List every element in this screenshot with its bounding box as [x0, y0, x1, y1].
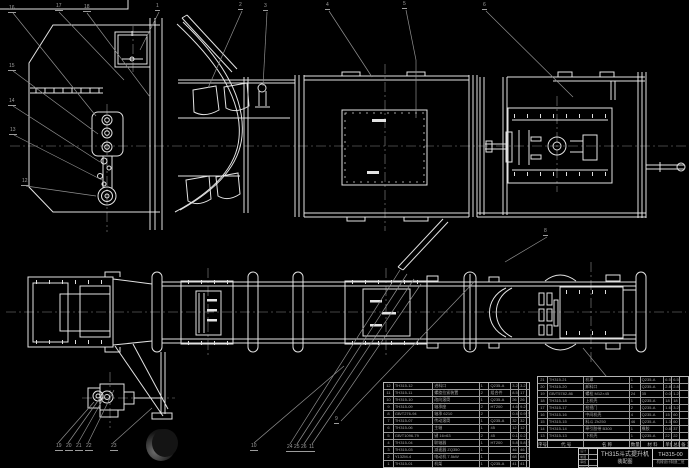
casing-door-1	[181, 281, 233, 344]
bucket	[186, 176, 211, 204]
drawing-title: TH315斗式提升机	[601, 452, 649, 459]
item-balloon: 23	[110, 444, 118, 451]
item-balloon: 21	[75, 444, 83, 451]
bom-header-row: 序号代 号名 称数量材 料单件总计备 注	[537, 440, 689, 448]
bom-table-left: 12TH315-12进料口1Q235-A3.23.211TH315-11螺旋拉紧…	[383, 382, 530, 468]
item-balloon: 15	[8, 64, 16, 71]
item-balloon: 4	[325, 3, 330, 10]
bom-row: 17TH315-17检视门2Q235-A1.63.2	[538, 404, 688, 411]
bom-row: 14TH315-14牵引胶带 B3001橡胶0.837	[538, 425, 688, 432]
down-chute	[115, 346, 163, 416]
title-cell: TH315斗式提升机 装配图	[598, 449, 653, 467]
drive-unit	[88, 384, 161, 417]
item-balloon: 9	[334, 417, 339, 424]
item-balloon: 22	[85, 444, 93, 451]
bom-row: 11TH315-11螺旋拉紧装置2组合件8.517	[384, 389, 529, 396]
bom-row: 6TH315-06主轴1451212	[384, 424, 529, 431]
item-balloon: 1	[155, 4, 160, 11]
bom-header-cell: 总计	[671, 441, 679, 447]
bom-header-cell: 材 料	[640, 441, 664, 447]
inlet-chute	[398, 219, 448, 270]
walkway-ticks	[36, 88, 99, 93]
bom-row: 18TH315-18上机壳1Q235-A1818	[538, 397, 688, 404]
bom-cell: 下机壳	[583, 433, 628, 439]
bom-cell	[526, 461, 529, 467]
bom-row: 3TH315-03减速器 ZQ35014646外购	[384, 446, 529, 453]
bom-cell	[679, 433, 688, 439]
item-balloon: 3	[263, 4, 268, 11]
bucket-bolt	[255, 84, 270, 107]
item-balloon: 10	[250, 444, 258, 451]
bom-row: 2Y132M-4电动机 7.5kW16868外购	[384, 453, 529, 460]
bom-header-cell: 数量	[629, 441, 640, 447]
drawing-subtitle: 装配图	[617, 459, 632, 465]
bom-cell: 41	[518, 461, 526, 467]
bom-row: 4TH315-04联轴器1HT2005.85.8外购	[384, 439, 529, 446]
item-balloon: 13	[9, 128, 17, 135]
bom-row: 15TH315-15料斗 Zh25046Q235-A1.360	[538, 418, 688, 425]
item-balloon: 26	[300, 445, 308, 452]
item-balloon: 20	[65, 444, 73, 451]
item-balloon: 11	[308, 445, 315, 452]
drawing-number-cell: TH315-00 机械设计制造二班	[653, 449, 688, 467]
signature-grid: 设计制图审核批准	[579, 449, 598, 467]
bom-cell: Q235-A	[640, 433, 664, 439]
bom-row: 10TH315-10改向滚筒1Q235-A2626	[384, 396, 529, 403]
bom-row: 7TH315-07传动滚筒1Q235-A3232	[384, 417, 529, 424]
bom-row: 19GB/T5782-86螺栓 M12×4524350.051.2	[538, 390, 688, 397]
bom-cell: 1	[384, 461, 393, 467]
bom-cell: Q235-A	[488, 461, 510, 467]
middle-casing	[295, 72, 477, 221]
item-balloon: 18	[83, 5, 91, 12]
item-balloon: 16	[8, 6, 16, 13]
boot-section	[477, 72, 685, 218]
bom-row: 16TH315-16中间机壳4Q235-A1560	[538, 411, 688, 418]
sheet-border-corner	[0, 0, 128, 9]
bom-row: 5GB/T1096-79键 16×632450.10.2	[384, 432, 529, 439]
item-balloon: 6	[482, 3, 487, 10]
bom-header-cell: 备 注	[679, 441, 688, 447]
takeup-device	[485, 130, 597, 165]
bom-cell: 22	[671, 433, 679, 439]
bom-row: 9TH315-09轴承座2HT2004.69.2	[384, 403, 529, 410]
bom-cell: 1	[629, 433, 640, 439]
item-balloon: 2	[238, 3, 243, 10]
bom-row: 1TH315-01机架1Q235-A4141	[384, 460, 529, 467]
bom-table-right: 21TH315-21机罩1Q235-A6.56.520TH315-20卸料口1Q…	[537, 376, 689, 440]
signature-row: 批准	[579, 465, 597, 468]
bom-cell: 机架	[432, 461, 478, 467]
bom-cell: 22	[663, 433, 671, 439]
door-handle	[367, 171, 379, 174]
bom-header-cell: 代 号	[547, 441, 584, 447]
bom-header-cell: 单件	[663, 441, 671, 447]
bom-header-cell: 序号	[538, 441, 547, 447]
bom-cell: TH315-13	[547, 433, 584, 439]
cad-canvas[interactable]: 1615141312171812345689192021222310242526…	[0, 0, 689, 468]
drawing-number: TH315-00	[658, 452, 682, 459]
ink-smudge	[144, 427, 178, 465]
door-handle	[372, 119, 386, 122]
bom-row: 8GB/T276-94轴承 621020.460.9外购	[384, 410, 529, 417]
bom-header-cell: 名 称	[583, 441, 628, 447]
item-balloon: 14	[8, 99, 16, 106]
bom-cell: TH315-01	[393, 461, 432, 467]
item-balloon: 8	[543, 229, 548, 236]
bom-row: 20TH315-20卸料口1Q235-A2.82.8	[538, 383, 688, 390]
bucket	[216, 173, 240, 199]
bom-row: 13TH315-13下机壳1Q235-A2222	[538, 432, 688, 439]
bom-cell: 1	[479, 461, 489, 467]
drawing-org: 机械设计制造二班	[653, 459, 688, 465]
item-balloon: 19	[55, 444, 63, 451]
item-balloon: 17	[55, 4, 63, 11]
bom-cell: 41	[510, 461, 518, 467]
pulley-wheels	[98, 115, 117, 205]
bom-cell: 13	[538, 433, 547, 439]
title-block: 设计制图审核批准 TH315斗式提升机 装配图 TH315-00 机械设计制造二…	[578, 448, 689, 468]
item-balloon: 12	[21, 179, 29, 186]
bucket-incline	[175, 15, 295, 213]
item-balloon: 5	[402, 2, 407, 9]
bucket	[193, 86, 219, 115]
